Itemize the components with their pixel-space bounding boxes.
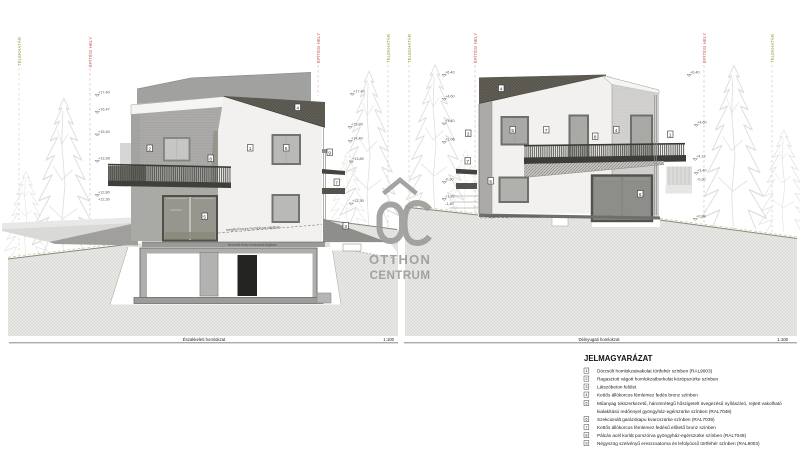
- svg-text:1:100: 1:100: [777, 337, 788, 342]
- svg-text:ÉPÍTÉSI HELY: ÉPÍTÉSI HELY: [702, 33, 707, 63]
- svg-text:7: 7: [545, 128, 548, 133]
- svg-text:7: 7: [466, 159, 469, 164]
- svg-text:Pálcás acél korlát porszórva g: Pálcás acél korlát porszórva gyöngyház-e…: [597, 433, 746, 438]
- svg-text:7: 7: [335, 180, 338, 185]
- svg-text:+15,40: +15,40: [98, 130, 110, 134]
- svg-text:TELEKHATÁR: TELEKHATÁR: [407, 34, 412, 63]
- svg-text:+4,12: +4,12: [696, 155, 706, 159]
- svg-text:9: 9: [328, 150, 331, 155]
- svg-text:+17,40: +17,40: [353, 90, 365, 94]
- svg-text:+15,80: +15,80: [351, 123, 363, 127]
- svg-text:Ragasztott vágott homlokzatbur: Ragasztott vágott homlokzatburkolat közé…: [597, 376, 719, 381]
- svg-text:+3,40: +3,40: [445, 119, 455, 123]
- svg-text:tervezett terep homlokzat síkj: tervezett terep homlokzat síkjában: [228, 243, 277, 247]
- svg-text:2: 2: [467, 131, 470, 136]
- svg-text:+4,60: +4,60: [445, 95, 455, 99]
- svg-text:3: 3: [344, 224, 347, 229]
- svg-text:+0,98: +0,98: [696, 215, 706, 219]
- svg-text:6: 6: [639, 192, 642, 197]
- svg-text:3: 3: [585, 385, 587, 389]
- svg-text:8: 8: [594, 134, 597, 139]
- svg-text:+4,60: +4,60: [697, 121, 707, 125]
- svg-text:-0,30: -0,30: [445, 178, 454, 182]
- svg-text:Látszóbeton felület: Látszóbeton felület: [597, 384, 637, 389]
- svg-text:Délnyugati homlokzat: Délnyugati homlokzat: [578, 337, 620, 342]
- svg-text:1:100: 1:100: [383, 337, 394, 342]
- svg-text:+12,80: +12,80: [98, 191, 110, 195]
- svg-text:5: 5: [285, 146, 288, 151]
- svg-text:ÉPÍTÉSI HELY: ÉPÍTÉSI HELY: [316, 33, 321, 63]
- svg-text:+12,30: +12,30: [98, 198, 110, 202]
- svg-text:+1,06: +1,06: [445, 138, 455, 142]
- svg-text:+13,98: +13,98: [98, 157, 110, 161]
- svg-text:1: 1: [669, 132, 672, 137]
- svg-text:ÉPÍTÉSI HELY: ÉPÍTÉSI HELY: [88, 37, 93, 67]
- svg-text:+1,88: +1,88: [445, 195, 455, 199]
- svg-text:9: 9: [585, 442, 587, 446]
- svg-text:8: 8: [585, 434, 587, 438]
- svg-text:+13,80: +13,80: [352, 157, 364, 161]
- svg-text:4: 4: [500, 86, 503, 91]
- svg-text:4: 4: [296, 105, 299, 110]
- svg-text:CENTRUM: CENTRUM: [370, 269, 431, 282]
- svg-text:8: 8: [209, 156, 212, 161]
- svg-text:ÉPÍTÉSI HELY: ÉPÍTÉSI HELY: [473, 33, 478, 63]
- svg-text:TELEKHATÁR: TELEKHATÁR: [770, 34, 775, 63]
- svg-text:2: 2: [148, 146, 151, 151]
- svg-text:5: 5: [585, 402, 587, 406]
- svg-text:+3,40: +3,40: [697, 169, 707, 173]
- svg-text:Kettős állókorcos fémlemez fed: Kettős állókorcos fémlemez fedésű előtet…: [597, 425, 716, 430]
- svg-text:+6,40: +6,40: [690, 71, 700, 75]
- svg-text:+16,47: +16,47: [98, 108, 110, 112]
- svg-text:kialakítású redőnnyel gyöngyhá: kialakítású redőnnyel gyöngyház-egérszür…: [597, 409, 732, 414]
- svg-text:+6,40: +6,40: [445, 71, 455, 75]
- svg-text:1: 1: [249, 146, 252, 151]
- svg-text:1: 1: [585, 369, 587, 373]
- svg-text:JELMAGYARÁZAT: JELMAGYARÁZAT: [584, 354, 653, 363]
- svg-text:-0,30: -0,30: [697, 178, 706, 182]
- svg-text:5: 5: [511, 128, 514, 133]
- svg-text:4: 4: [585, 393, 587, 397]
- svg-text:Műanyag tokszerkezetű, háromré: Műanyag tokszerkezetű, háromrétegű hőszi…: [597, 401, 782, 406]
- svg-text:+14,40: +14,40: [351, 137, 363, 141]
- svg-text:2: 2: [585, 377, 587, 381]
- svg-text:Dörzsölt homlokzatvakolat tört: Dörzsölt homlokzatvakolat törtfehér szín…: [597, 368, 713, 373]
- svg-text:+17,40: +17,40: [98, 91, 110, 95]
- svg-text:TELEKHATÁR: TELEKHATÁR: [386, 34, 391, 63]
- svg-text:5: 5: [489, 179, 492, 184]
- svg-text:4: 4: [615, 128, 618, 133]
- svg-text:Északkeleti homlokzat: Északkeleti homlokzat: [183, 337, 226, 342]
- svg-text:TELEKHATÁR: TELEKHATÁR: [17, 37, 22, 66]
- svg-text:Kettős állókorcos fémlemez fed: Kettős állókorcos fémlemez fedés bronz s…: [597, 392, 698, 397]
- svg-text:6: 6: [585, 418, 587, 422]
- svg-text:Négyszög szelvényű ereszcsator: Négyszög szelvényű ereszcsatorna és lefo…: [597, 441, 760, 446]
- svg-text:Szekcionált garázskapu kvarcsz: Szekcionált garázskapu kvarcszürke színb…: [597, 417, 715, 422]
- svg-text:5: 5: [203, 214, 206, 219]
- svg-text:+12,30: +12,30: [352, 199, 364, 203]
- svg-text:-1,40: -1,40: [445, 202, 454, 206]
- svg-text:OTTHON: OTTHON: [369, 252, 431, 267]
- svg-text:7: 7: [585, 426, 587, 430]
- svg-text:meglévő terep homlokzat síkjáb: meglévő terep homlokzat síkjában: [486, 215, 541, 219]
